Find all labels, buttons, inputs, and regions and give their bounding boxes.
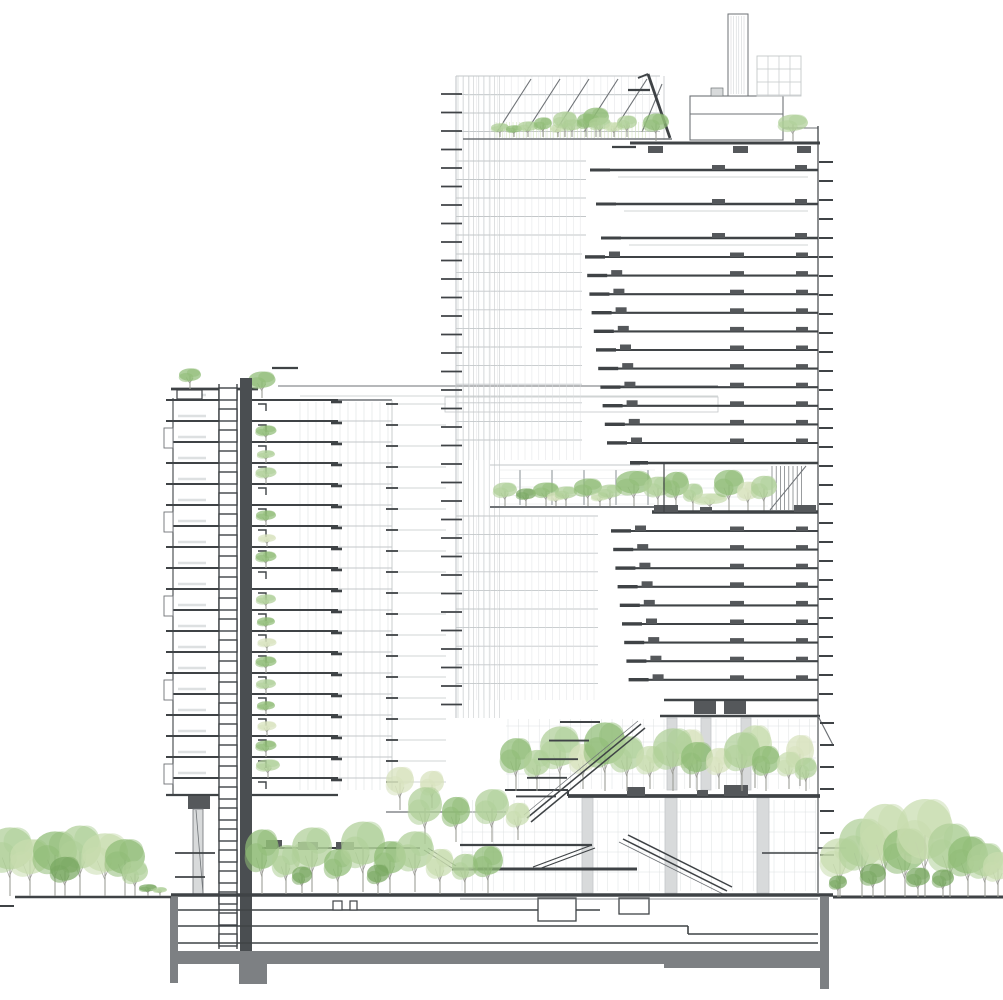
building-section-drawing xyxy=(0,0,1003,1000)
ground-trees-mid xyxy=(245,821,503,894)
street-trees-left xyxy=(0,825,167,896)
basement xyxy=(0,897,829,989)
rear-wing-elevation xyxy=(272,368,718,790)
street-trees-right xyxy=(820,799,1003,897)
tower-section-floors xyxy=(585,143,833,718)
roof-penthouse xyxy=(690,14,818,143)
architectural-section-canvas xyxy=(0,0,1003,1000)
sky-garden-left xyxy=(490,465,672,508)
ground-lines xyxy=(15,895,1003,899)
